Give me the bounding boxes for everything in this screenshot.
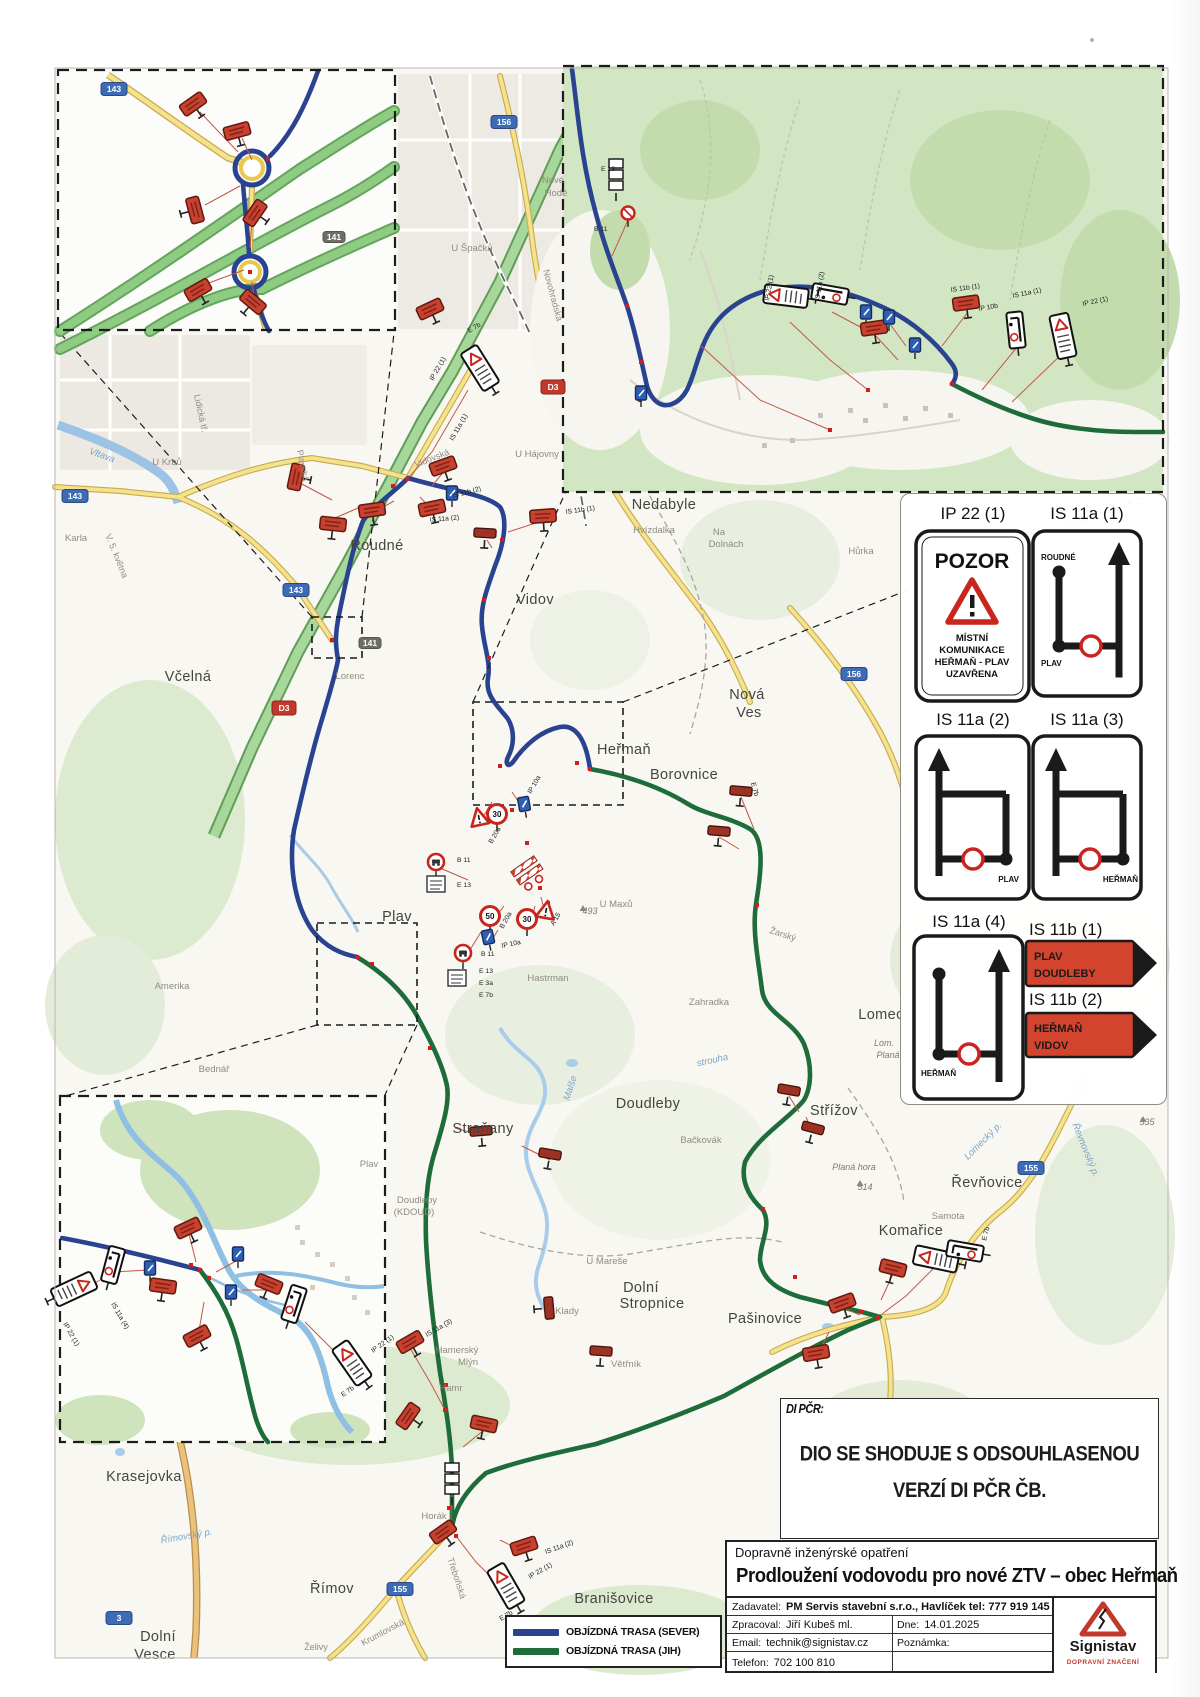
zpracoval-label: Zpracoval: (732, 1619, 781, 1631)
junction-dot (588, 767, 592, 771)
svg-text:141: 141 (363, 638, 377, 648)
svg-text:D3: D3 (548, 382, 559, 392)
junction-dot (355, 955, 359, 959)
junction-dot (330, 638, 334, 642)
map-label: Doudleby (397, 1195, 437, 1206)
sign-code-label: E 13 (479, 968, 493, 975)
map-label: Dolní (623, 1280, 659, 1296)
logo-name: Signistav (1070, 1638, 1137, 1655)
map-label: Vesce (134, 1647, 176, 1663)
svg-text:HEŘMAŇ: HEŘMAŇ (921, 1069, 956, 1078)
map-label: Branišovice (574, 1591, 653, 1607)
junction-dot (828, 428, 832, 432)
inset-interchange (58, 70, 395, 349)
traffic-sign-marker-plates (448, 970, 466, 986)
road-shield: 141 (359, 638, 381, 649)
junction-dot (793, 1275, 797, 1279)
map-label: Vidov (516, 592, 554, 608)
sign-is11a2: PLAV (916, 736, 1029, 899)
map-label: Pašinovice (728, 1311, 802, 1327)
road-shield: 155 (1018, 1162, 1044, 1175)
logo-tagline: DOPRAVNÍ ZNAČENÍ (1067, 1657, 1140, 1666)
road-shield: 155 (387, 1583, 413, 1596)
junction-dot (866, 388, 870, 392)
di-pcr-line2: VERZÍ DI PČR ČB. (781, 1472, 1158, 1509)
map-label: Bačkovák (680, 1135, 721, 1146)
map-label: Dolní (140, 1629, 176, 1645)
map-label: Planá hora (832, 1162, 876, 1172)
map-label: U Maxů (600, 899, 633, 910)
map-label: Hůrka (848, 546, 874, 557)
svg-text:KOMUNIKACE: KOMUNIKACE (939, 645, 1004, 656)
map-label: Borovnice (650, 767, 718, 783)
map-label: Zahradka (689, 997, 730, 1008)
svg-text:ROUDNÉ: ROUDNÉ (1041, 553, 1076, 562)
sign-code-label: B 11 (594, 226, 608, 233)
svg-text:143: 143 (107, 84, 121, 94)
map-label: Dolnách (709, 539, 744, 550)
telefon-value: 702 100 810 (774, 1657, 835, 1669)
map-label: Karla (65, 533, 88, 544)
route-jih-label: OBJÍZDNÁ TRASA (JIH) (566, 1645, 681, 1657)
legend-code-is11a4: IS 11a (4) (932, 912, 1005, 931)
sign-code-label: E 13 (601, 166, 615, 173)
di-pcr-label: DI PČR: (786, 1402, 823, 1416)
map-label: U Krbů (152, 457, 182, 468)
junction-dot (482, 598, 486, 602)
poznamka-label: Poznámka: (897, 1637, 950, 1649)
map-label: Straňany (452, 1121, 514, 1137)
map-label: Hamerský (436, 1345, 479, 1356)
map-label: U Hájovny (515, 449, 559, 460)
map-label: Nová (729, 687, 765, 703)
svg-text:156: 156 (497, 117, 511, 127)
map-label: Hamr (439, 1383, 462, 1394)
map-label: Stropnice (620, 1296, 685, 1312)
map-label: Ves (736, 705, 761, 721)
legend-code-is11b1: IS 11b (1) (1029, 920, 1102, 939)
map-label: Mlýn (458, 1357, 478, 1368)
svg-text:50: 50 (486, 912, 495, 921)
junction-dot (575, 761, 579, 765)
sign-code-label: B 11 (481, 951, 495, 958)
map-label: Bednář (199, 1064, 230, 1075)
junction-dot (498, 764, 502, 768)
svg-text:PLAV: PLAV (1041, 659, 1062, 668)
map-label: Klady (555, 1306, 579, 1317)
svg-text:MÍSTNÍ: MÍSTNÍ (956, 633, 989, 644)
junction-dot (487, 656, 491, 660)
svg-text:UZAVŘENA: UZAVŘENA (946, 668, 998, 680)
map-label: Hodě (545, 188, 568, 199)
map-label: Roudné (350, 538, 403, 554)
sign-code-label: E 3a (479, 980, 493, 987)
dne-value: 14.01.2025 (924, 1619, 979, 1631)
map-label: Želivy (304, 1642, 328, 1652)
svg-text:3: 3 (117, 1613, 122, 1623)
sign-code-label: E 7b (479, 992, 493, 999)
traffic-sign-marker-plates (427, 876, 445, 892)
junction-dot (406, 477, 410, 481)
road-shield: 143 (101, 83, 127, 96)
telefon-label: Telefon: (732, 1657, 769, 1669)
map-label: Hvízdalka (633, 525, 675, 536)
road-shield: 141 (323, 232, 345, 243)
map-label: Na (713, 527, 726, 538)
map-label: Planá (876, 1050, 899, 1060)
map-label: Samota (932, 1211, 965, 1222)
junction-dot (443, 1408, 447, 1412)
zadavatel-value: PM Servis stavební s.r.o., Havlíček tel:… (786, 1601, 1050, 1613)
route-legend-jih: OBJÍZDNÁ TRASA (JIH) (513, 1645, 714, 1657)
road-shield: D3 (541, 380, 565, 394)
svg-text:143: 143 (68, 491, 82, 501)
document-category: Dopravně inženýrské opatření (735, 1545, 908, 1560)
map-label: Nedabyle (632, 497, 696, 513)
svg-text:155: 155 (1024, 1163, 1038, 1173)
sign-is11a3: HEŘMAŇ (1033, 736, 1141, 899)
svg-text:155: 155 (393, 1584, 407, 1594)
map-label: Včelná (165, 669, 212, 685)
map-label: Lomec (858, 1007, 904, 1023)
junction-dot (625, 304, 629, 308)
sign-is11b2: HEŘMAŇ VIDOV (1026, 1013, 1157, 1057)
svg-text:156: 156 (847, 669, 861, 679)
map-label: Amerika (155, 981, 191, 992)
route-jih-swatch (513, 1648, 559, 1655)
svg-text:143: 143 (289, 585, 303, 595)
map-label: Krasejovka (106, 1469, 182, 1485)
sign-ip22: POZOR MÍSTNÍ KOMUNIKACE HEŘMAŇ - PLAV UZ… (916, 531, 1029, 701)
svg-text:D3: D3 (279, 703, 290, 713)
legend-code-is11a1: IS 11a (1) (1050, 504, 1123, 523)
route-legend: OBJÍZDNÁ TRASA (SEVER) OBJÍZDNÁ TRASA (J… (505, 1615, 722, 1668)
map-label: Plav (360, 1159, 379, 1170)
junction-dot (447, 1506, 451, 1510)
map-label: Horák (421, 1511, 447, 1522)
route-legend-sever: OBJÍZDNÁ TRASA (SEVER) (513, 1626, 714, 1638)
sign-legend-panel: IP 22 (1) IS 11a (1) POZOR MÍSTNÍ KOMUNI… (900, 493, 1167, 1105)
junction-dot (198, 1268, 202, 1272)
document-title: Prodloužení vodovodu pro nové ZTV – obec… (736, 1563, 1178, 1588)
road-shield: 143 (283, 584, 309, 597)
junction-dot (755, 903, 759, 907)
company-logo-box: Signistav DOPRAVNÍ ZNAČENÍ (1052, 1596, 1155, 1673)
map-label: Nové (542, 175, 564, 186)
map-label: Střížov (810, 1103, 858, 1119)
map-label: Heřmaň (597, 742, 651, 758)
sign-legend-graphics: IP 22 (1) IS 11a (1) POZOR MÍSTNÍ KOMUNI… (901, 494, 1166, 1104)
junction-dot (950, 382, 954, 386)
legend-code-ip22: IP 22 (1) (941, 504, 1006, 523)
email-value: technik@signistav.cz (766, 1637, 868, 1649)
junction-dot (860, 1310, 864, 1314)
zadavatel-label: Zadavatel: (732, 1601, 781, 1613)
sign-code-label: E 13 (457, 882, 471, 889)
svg-text:PLAV: PLAV (1034, 951, 1063, 963)
legend-code-is11a3: IS 11a (3) (1050, 710, 1123, 729)
map-label: Lorenc (335, 671, 364, 682)
svg-text:HEŘMAŇ: HEŘMAŇ (1103, 875, 1138, 884)
road-shield: 3 (106, 1612, 132, 1625)
legend-code-is11a2: IS 11a (2) (936, 710, 1009, 729)
junction-dot (500, 538, 504, 542)
junction-dot (248, 270, 252, 274)
junction-dot (454, 1534, 458, 1538)
email-label: Email: (732, 1637, 761, 1649)
svg-text:HEŘMAŇ: HEŘMAŇ (1034, 1022, 1082, 1035)
inset-forest-detail (530, 66, 1180, 492)
svg-text:HEŘMAŇ - PLAV: HEŘMAŇ - PLAV (935, 656, 1010, 668)
sign-code-label: B 11 (457, 857, 471, 864)
junction-dot (639, 360, 643, 364)
sign-is11a4: HEŘMAŇ (914, 936, 1023, 1099)
map-label: Lom. (874, 1038, 894, 1048)
junction-dot (391, 484, 395, 488)
route-sever-label: OBJÍZDNÁ TRASA (SEVER) (566, 1626, 699, 1638)
sign-is11a1: ROUDNÉ PLAV (1033, 531, 1141, 696)
map-label: U Špačků (451, 243, 492, 254)
map-label: Hastrman (527, 973, 568, 984)
junction-dot (266, 157, 270, 161)
dne-label: Dne: (897, 1619, 919, 1631)
traffic-plan-page: 305030 1431431431561561551553D3D3141141 … (0, 0, 1200, 1697)
junction-dot (370, 962, 374, 966)
junction-dot (189, 1263, 193, 1267)
title-block-table: Zadavatel: PM Servis stavební s.r.o., Ha… (727, 1596, 1054, 1673)
junction-dot (510, 808, 514, 812)
map-label: Komařice (879, 1223, 943, 1239)
sign-is11b1: PLAV DOUDLEBY (1026, 941, 1157, 986)
junction-dot (876, 1315, 880, 1319)
junction-dot (538, 886, 542, 890)
road-shield: 156 (841, 668, 867, 681)
map-label: Větřník (611, 1359, 641, 1370)
zpracoval-value: Jiří Kubeš ml. (786, 1619, 853, 1631)
svg-text:30: 30 (523, 915, 532, 924)
junction-dot (207, 1276, 211, 1280)
svg-text:DOUDLEBY: DOUDLEBY (1034, 968, 1096, 980)
junction-dot (428, 1046, 432, 1050)
di-pcr-line1: DIO SE SHODUJE S ODSOUHLASENOU (781, 1435, 1158, 1472)
road-shield: 143 (62, 490, 88, 503)
road-shield: 156 (491, 116, 517, 129)
svg-text:141: 141 (327, 232, 341, 242)
title-block: Dopravně inženýrské opatření Prodloužení… (725, 1540, 1157, 1673)
scan-speck (1090, 38, 1094, 42)
svg-text:VIDOV: VIDOV (1034, 1040, 1069, 1052)
map-label: Plav (382, 909, 412, 925)
svg-text:POZOR: POZOR (935, 550, 1010, 573)
legend-code-is11b2: IS 11b (2) (1029, 990, 1102, 1009)
junction-dot (761, 1207, 765, 1211)
map-label: Řevňovice (951, 1174, 1022, 1191)
map-label: Doudleby (616, 1096, 681, 1112)
road-shield: D3 (272, 701, 296, 715)
map-label: U Mareše (586, 1256, 627, 1267)
di-pcr-note-box: DI PČR: DIO SE SHODUJE S ODSOUHLASENOU V… (780, 1398, 1159, 1539)
junction-dot (525, 841, 529, 845)
map-label: Římov (310, 1580, 354, 1597)
map-label: (KDOUD) (394, 1207, 435, 1218)
route-sever-swatch (513, 1629, 559, 1636)
svg-text:30: 30 (493, 810, 502, 819)
svg-text:PLAV: PLAV (998, 875, 1019, 884)
